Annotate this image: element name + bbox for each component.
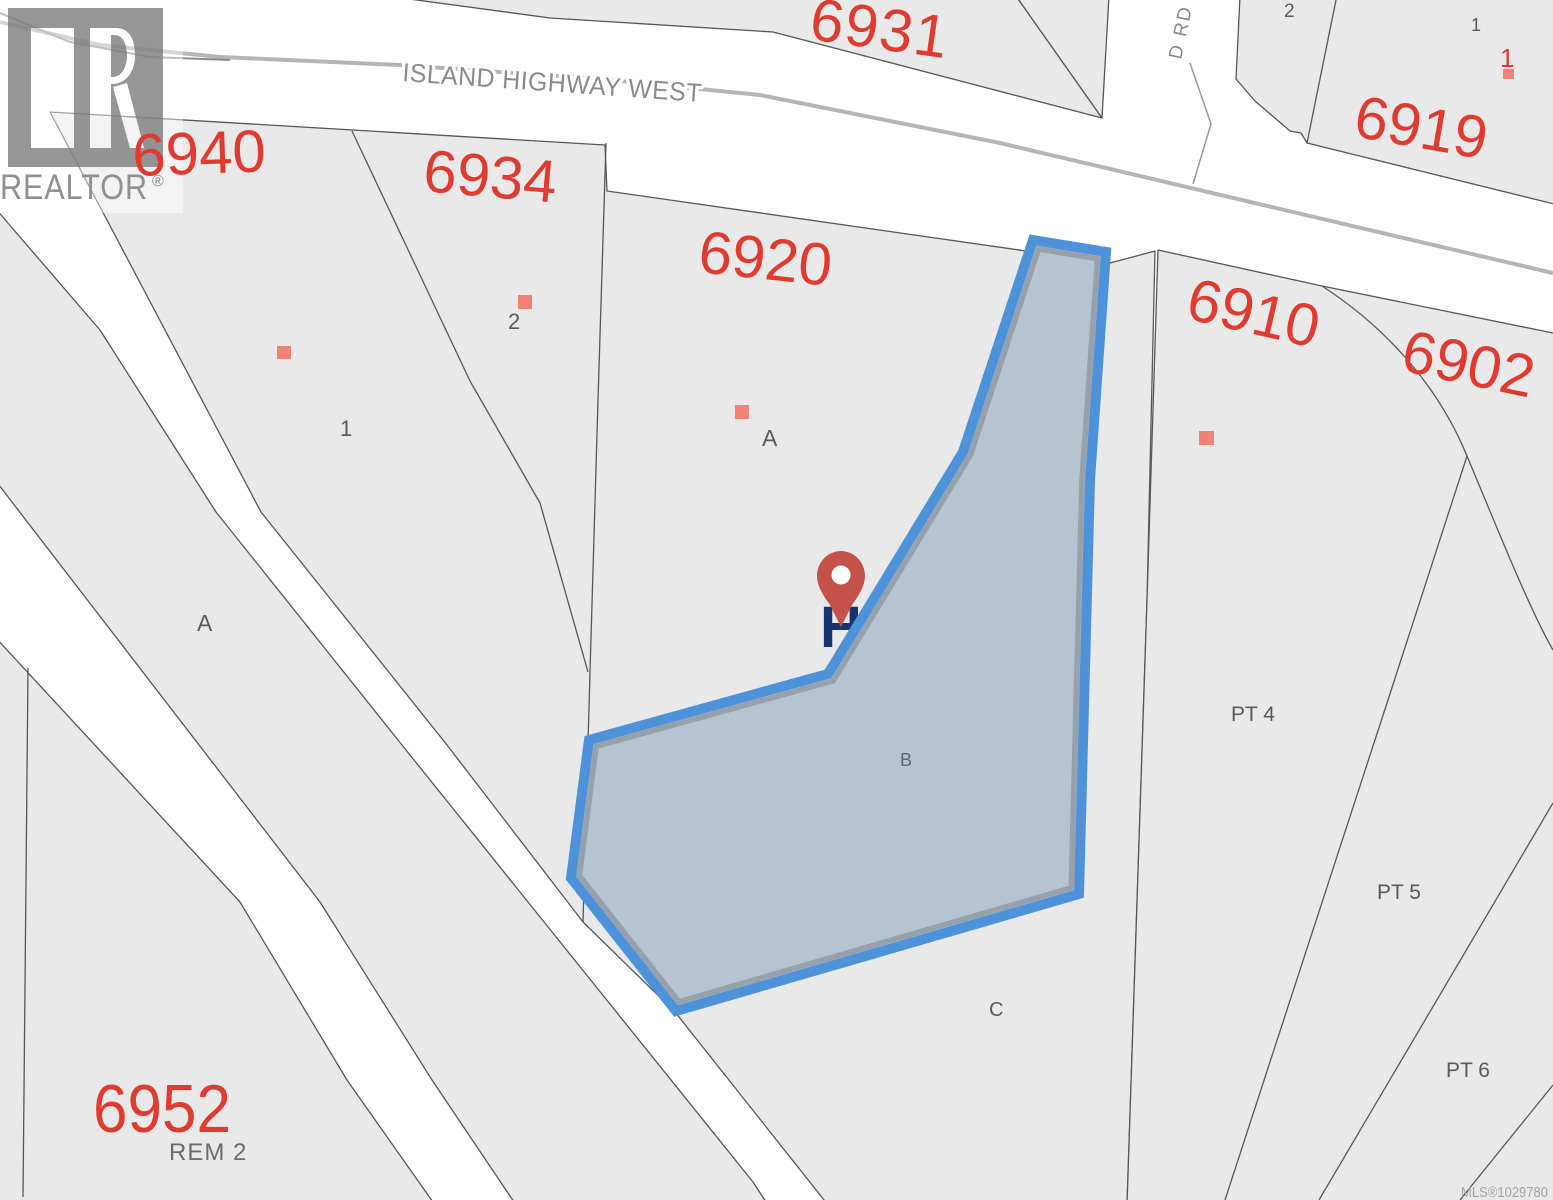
svg-text:1: 1: [1471, 15, 1481, 35]
svg-text:A: A: [197, 610, 213, 636]
svg-text:MLS®1029780: MLS®1029780: [1461, 1184, 1548, 1200]
svg-text:PT 4: PT 4: [1231, 703, 1275, 726]
svg-text:2: 2: [1284, 1, 1295, 22]
svg-text:C: C: [989, 999, 1003, 1021]
svg-text:PT 5: PT 5: [1377, 881, 1421, 904]
svg-text:PT 6: PT 6: [1446, 1059, 1490, 1082]
svg-text:1: 1: [1500, 43, 1514, 73]
svg-text:6920: 6920: [696, 218, 836, 299]
svg-text:REALTOR: REALTOR: [0, 168, 148, 207]
svg-text:6940: 6940: [131, 117, 267, 189]
svg-text:2: 2: [508, 309, 520, 334]
svg-text:REM 2: REM 2: [169, 1139, 247, 1166]
svg-text:6952: 6952: [93, 1071, 231, 1147]
svg-text:A: A: [762, 425, 778, 451]
svg-text:6934: 6934: [421, 137, 560, 215]
svg-text:B: B: [900, 750, 912, 770]
svg-text:1: 1: [340, 416, 352, 441]
